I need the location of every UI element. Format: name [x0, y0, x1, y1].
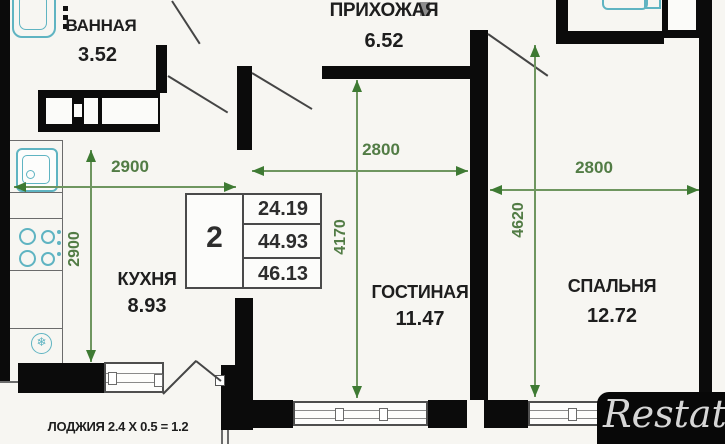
- dim-line-living-width: [252, 170, 468, 172]
- dim-line-bedroom-width: [490, 189, 699, 191]
- room-label-bathroom: ВАННАЯ: [58, 16, 144, 36]
- counter-edge-right: [62, 140, 63, 363]
- wall-topright-horiz: [556, 31, 664, 44]
- wall-right-outer: [699, 0, 712, 428]
- wall-bathroom-right: [156, 45, 167, 93]
- wall-living-left-foot: [253, 400, 293, 428]
- counter-divider: [10, 218, 62, 219]
- counter-divider: [10, 328, 62, 329]
- dim-arrow: [687, 185, 699, 195]
- wall-central: [470, 30, 488, 400]
- loggia-edge: [227, 430, 229, 444]
- balcony-edge: [0, 381, 18, 383]
- area-without-balcony: 44.93: [244, 231, 322, 254]
- vanity-cabinet-icon: [644, 0, 661, 9]
- dim-kitchen-depth: 2900: [66, 227, 84, 271]
- stove-burner-icon: [19, 228, 36, 245]
- stove-burner-icon: [19, 250, 36, 267]
- door-swing-hall-left: [167, 75, 228, 113]
- bathtub-inner: [19, 0, 47, 30]
- stove-knob-icon: [57, 230, 61, 234]
- wall-bottom-seg1: [428, 400, 467, 428]
- room-area-bedroom: 12.72: [562, 305, 662, 328]
- dim-line-kitchen-width: [14, 186, 236, 188]
- stove-burner-icon: [41, 230, 55, 244]
- watermark-logo: Restate: [603, 392, 725, 436]
- door-swing-kitchen: [251, 72, 312, 110]
- bathroom-box-cell: [84, 98, 98, 124]
- room-label-kitchen: КУХНЯ: [107, 269, 187, 290]
- counter-divider: [10, 192, 62, 193]
- wall-living-left-vert: [235, 298, 253, 430]
- stove-knob-icon: [57, 241, 61, 245]
- wall-hallway-bottom: [322, 66, 472, 79]
- wall-balcony: [18, 363, 105, 393]
- room-area-living: 11.47: [370, 308, 470, 331]
- stove-knob-icon: [57, 252, 61, 256]
- balcony-slider-window: [104, 362, 164, 393]
- dim-arrow: [14, 182, 26, 192]
- vanity-sink-icon: [602, 0, 648, 10]
- dim-arrow: [86, 150, 96, 162]
- loggia-label: ЛОДЖИЯ 2.4 X 0.5 = 1.2: [38, 419, 198, 434]
- loggia-edge: [221, 430, 223, 444]
- bathroom-box-cell: [102, 98, 158, 124]
- dim-line-bedroom-height: [534, 45, 536, 397]
- room-area-bathroom: 3.52: [60, 44, 135, 67]
- dim-arrow: [530, 385, 540, 397]
- dim-arrow: [490, 185, 502, 195]
- watermark-patch: Restate: [597, 392, 725, 444]
- dim-arrow: [86, 350, 96, 362]
- dim-arrow: [252, 166, 264, 176]
- floor-plan: ❄ 2900 2900 2800 4170 2800 4620 ВАННАЯ 3…: [0, 0, 725, 444]
- room-area-hallway: 6.52: [334, 30, 434, 53]
- dim-bedroom-height: 4620: [510, 198, 528, 242]
- bathroom-box-cell: [46, 98, 72, 124]
- wall-kitchen-stub: [237, 66, 252, 150]
- table-divider: [242, 223, 320, 225]
- counter-divider: [10, 270, 62, 271]
- wall-bottom-seg2: [484, 400, 528, 428]
- dim-arrow: [352, 80, 362, 92]
- dim-kitchen-width: 2900: [95, 157, 165, 177]
- room-label-bedroom: СПАЛЬНЯ: [562, 276, 662, 297]
- counter-edge-top: [10, 140, 62, 141]
- door-swing-balcony-a: [162, 360, 197, 395]
- door-swing-bathroom: [171, 0, 200, 44]
- towel-rail-icon: [63, 6, 68, 11]
- door-swing-balcony-b: [195, 360, 221, 382]
- kitchen-sink-drain: [26, 170, 35, 179]
- dim-arrow: [530, 45, 540, 57]
- dim-bedroom-width: 2800: [559, 158, 629, 178]
- room-area-kitchen: 8.93: [107, 295, 187, 318]
- kitchen-sink-basin: [22, 155, 50, 184]
- dim-arrow: [352, 386, 362, 398]
- table-divider: [242, 257, 320, 259]
- area-total: 46.13: [244, 263, 322, 286]
- dim-living-height: 4170: [332, 215, 350, 259]
- bathroom-box-notch: [74, 104, 82, 117]
- dim-arrow: [456, 166, 468, 176]
- area-living-total: 24.19: [244, 198, 322, 221]
- wall-left-outer: [0, 0, 10, 383]
- room-label-living: ГОСТИНАЯ: [370, 282, 470, 303]
- dim-line-living-height: [356, 80, 358, 398]
- stove-burner-icon: [41, 252, 55, 266]
- room-label-hallway: ПРИХОЖАЯ: [324, 0, 444, 22]
- room-count: 2: [187, 221, 242, 255]
- fridge-snowflake-icon: ❄: [31, 333, 52, 354]
- shaft-opening: [668, 0, 696, 30]
- window-living: [293, 401, 428, 426]
- dim-arrow: [224, 182, 236, 192]
- dim-line-kitchen-depth: [90, 150, 92, 362]
- apartment-summary-table: 2 24.19 44.93 46.13: [185, 193, 322, 289]
